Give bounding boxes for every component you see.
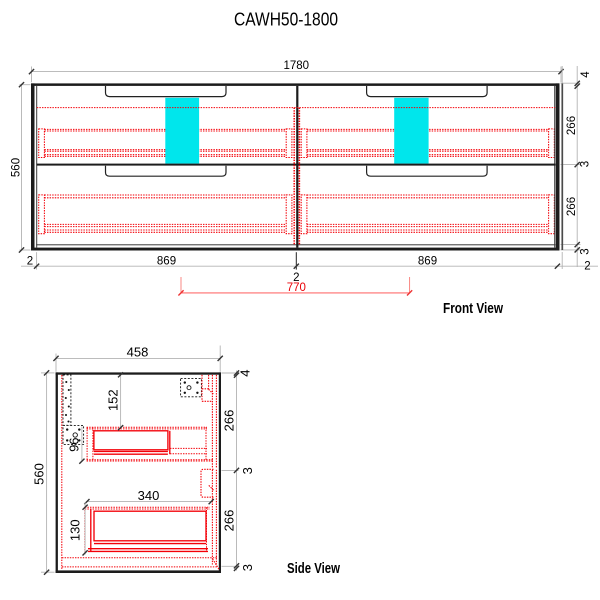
svg-text:Front View: Front View — [443, 301, 504, 317]
svg-text:96: 96 — [66, 437, 81, 451]
svg-text:458: 458 — [127, 345, 149, 360]
svg-text:2: 2 — [27, 256, 33, 268]
svg-text:266: 266 — [222, 410, 237, 432]
svg-text:266: 266 — [566, 197, 578, 216]
svg-text:869: 869 — [157, 256, 176, 268]
svg-text:266: 266 — [566, 116, 578, 135]
svg-text:3: 3 — [580, 248, 592, 254]
svg-text:266: 266 — [222, 510, 237, 532]
svg-text:4: 4 — [580, 71, 592, 78]
svg-text:130: 130 — [67, 519, 82, 541]
svg-text:CAWH50-1800: CAWH50-1800 — [234, 10, 338, 30]
svg-text:4: 4 — [238, 370, 253, 377]
svg-text:1780: 1780 — [284, 60, 310, 72]
svg-text:3: 3 — [240, 564, 255, 571]
svg-text:560: 560 — [11, 158, 23, 177]
svg-text:Side View: Side View — [287, 561, 341, 577]
svg-text:2: 2 — [584, 261, 590, 273]
svg-text:770: 770 — [287, 282, 306, 294]
svg-text:560: 560 — [32, 463, 47, 485]
svg-text:869: 869 — [418, 256, 437, 268]
svg-text:340: 340 — [138, 488, 160, 503]
svg-text:3: 3 — [240, 467, 255, 474]
svg-text:152: 152 — [106, 389, 121, 411]
svg-text:3: 3 — [580, 161, 592, 167]
